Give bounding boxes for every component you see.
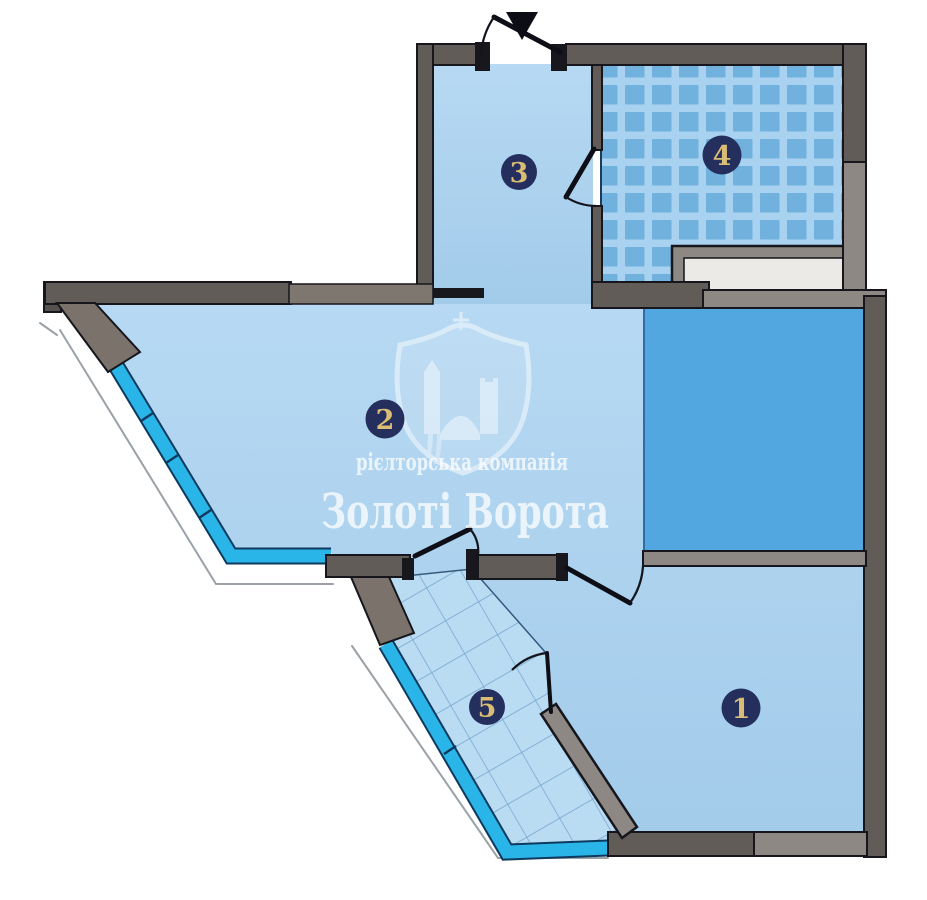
floor-plan: рієлторська компанія Золоті Ворота 1 2 3…	[0, 0, 927, 900]
room-4-badge: 4	[703, 136, 742, 175]
room-4-number: 4	[713, 141, 732, 172]
room-5-number: 5	[478, 693, 497, 724]
watermark-company-name: Золоті Ворота	[321, 484, 609, 540]
room-3-number: 3	[510, 158, 529, 189]
room-1-badge: 1	[722, 689, 761, 728]
room-3-badge: 3	[501, 154, 537, 190]
floor-plan-drawing: рієлторська компанія Золоті Ворота 1 2 3…	[0, 0, 927, 900]
watermark-company-type: рієлторська компанія	[356, 449, 568, 476]
entrance-door	[481, 12, 560, 55]
wall-segment	[592, 282, 709, 308]
wall-segment	[592, 206, 602, 291]
outer-contour-tick	[40, 323, 57, 335]
door-jamb	[402, 558, 414, 580]
wall-segment	[754, 832, 867, 856]
wall-segment	[608, 832, 754, 856]
door-jamb	[466, 549, 479, 580]
room-5-badge: 5	[469, 689, 505, 725]
wall-segment	[45, 282, 291, 304]
wall-segment	[843, 44, 866, 162]
wall-segment	[864, 296, 886, 857]
room-2-number: 2	[376, 405, 395, 436]
wall-segment	[326, 555, 410, 577]
wall-segment	[566, 44, 845, 65]
room-2-badge: 2	[366, 400, 405, 439]
wall-segment	[472, 555, 564, 579]
wall-segment	[592, 65, 602, 150]
loggia-sill	[643, 551, 866, 566]
wall-segment	[843, 162, 866, 296]
room-1-number: 1	[732, 694, 751, 725]
loggia-area	[643, 306, 866, 553]
wall-segment	[417, 44, 433, 298]
wall-segment	[289, 284, 433, 304]
wall-segment	[703, 290, 886, 308]
